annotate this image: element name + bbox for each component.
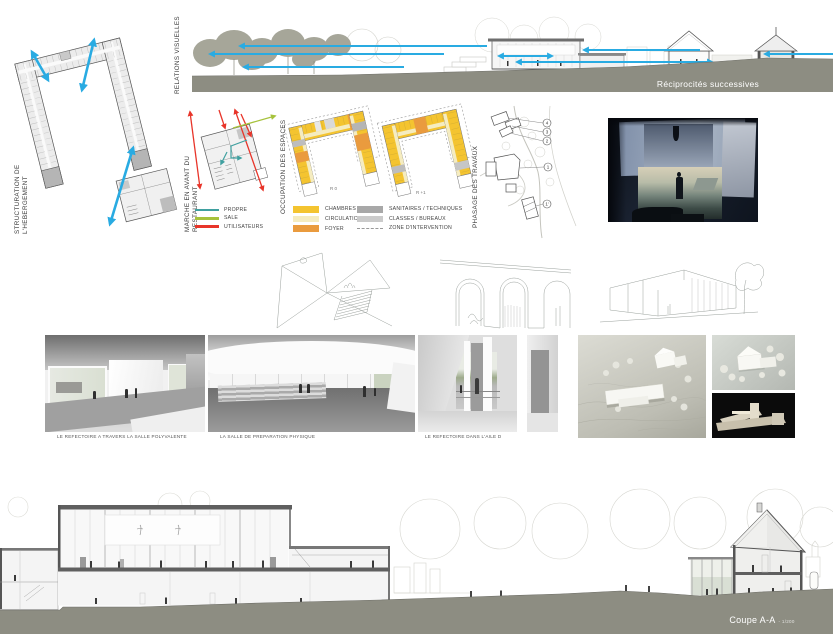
level-label-r0: R 0: [330, 186, 337, 191]
model-photo-detail-top: [712, 335, 795, 390]
photo-figure-inverted: [673, 126, 679, 141]
render3-column: [464, 341, 471, 421]
legend-label-foyer: FOYER: [325, 226, 344, 232]
section-title-relations: RELATIONS VISUELLES: [174, 14, 182, 94]
render3-railing: [456, 397, 501, 398]
coupe-main-building: [58, 505, 390, 606]
legend-row-utilisateurs: UTILISATEURS: [195, 224, 263, 230]
legend-swatch-sanitaires: [357, 206, 383, 213]
render3-floor: [418, 411, 517, 432]
mid-building-section: [488, 39, 626, 70]
legend-row-circulation: CIRCULATION: [293, 216, 362, 223]
legend-label-zone-intervention: ZONE D'INTERVENTION: [389, 225, 452, 231]
model-photo-night: [712, 393, 795, 438]
legend-swatch-sale: [195, 217, 219, 220]
render1-figure: [135, 388, 138, 398]
render-salle-preparation: [208, 335, 415, 432]
phase-markers: 4 3 2 1 1': [543, 119, 552, 208]
photo-shadow-left: [608, 118, 626, 222]
render-detail-strip: [527, 335, 558, 432]
render4-sill: [527, 413, 558, 432]
model-photo-site: [578, 335, 706, 438]
legend-label-utilisateurs: UTILISATEURS: [224, 224, 263, 230]
reference-photo: [608, 118, 758, 222]
legend-row-classes: CLASSES / BUREAUX: [357, 216, 462, 223]
legend-espaces-left: CHAMBRES CIRCULATION FOYER: [293, 206, 362, 235]
legend-swatch-classes: [357, 216, 383, 223]
render1-window-building: [56, 382, 82, 394]
photo-painting-inverted: [644, 124, 713, 168]
plan-r1: [377, 104, 479, 203]
render2-stair-white: [387, 362, 415, 412]
legend-row-chambres: CHAMBRES: [293, 206, 362, 213]
render4-panel: [531, 350, 550, 413]
render2-figure: [307, 384, 310, 393]
presentation-board: STRUCTURATION DE L'HEBERGEMENT: [0, 0, 833, 634]
coupe-scale: - 1/200: [779, 619, 795, 624]
coupe-label: Coupe A-A: [729, 615, 775, 625]
level-label-r1: R +1: [416, 190, 426, 195]
sketch-arches: [438, 248, 573, 336]
legend-swatch-chambres: [293, 206, 319, 213]
photo-shadow-top: [608, 118, 758, 126]
section-title-phasage: PHASAGE DES TRAVAUX: [472, 116, 480, 228]
render2-figure: [299, 384, 302, 393]
phase-number-1bis: 1': [545, 202, 549, 207]
coupe-aa-section: [0, 497, 833, 634]
legend-swatch-circulation: [293, 216, 319, 223]
legend-swatch-foyer: [293, 225, 319, 232]
restaurant-plan: [201, 123, 268, 191]
model-detail-drawing: [712, 335, 795, 390]
photo-wanderer-figure: [676, 177, 683, 199]
model-site-drawing: [578, 335, 706, 438]
phase-buildings: [486, 112, 538, 220]
render-refectoire-aile-d: [418, 335, 517, 432]
render1-figure: [125, 389, 128, 398]
model-night-drawing: [712, 393, 795, 438]
sketch-interior-stairs: [272, 248, 397, 333]
legend-label-sanitaires: SANITAIRES / TECHNIQUES: [389, 206, 462, 212]
sketch-exterior-building: [598, 250, 763, 335]
legend-flux: PROPRE SALE UTILISATEURS: [195, 207, 263, 232]
terrace-steps: [444, 57, 486, 72]
photo-paper-right: [721, 122, 757, 198]
restaurant-flow-plan: [183, 106, 278, 206]
render2-steps: [218, 382, 326, 401]
band-title-reciprocites: Réciprocités successives: [652, 79, 764, 89]
legend-swatch-utilisateurs: [195, 225, 219, 228]
coupe-title: Coupe A-A- 1/200: [712, 615, 812, 625]
legend-row-sanitaires: SANITAIRES / TECHNIQUES: [357, 206, 462, 213]
legend-row-zone: ZONE D'INTERVENTION: [357, 225, 462, 231]
legend-label-classes: CLASSES / BUREAUX: [389, 216, 446, 222]
render1-figure: [93, 391, 96, 399]
legend-label-propre: PROPRE: [224, 207, 247, 213]
render3-figure: [460, 385, 463, 393]
caption-render2: LA SALLE DE PREPARATION PHYSIQUE: [220, 434, 315, 439]
phasing-site-plan: 4 3 2 1 1': [480, 106, 580, 238]
render2-figure: [363, 386, 366, 397]
coupe-left-annex: [0, 548, 58, 610]
photo-rocks-2: [671, 214, 704, 222]
legend-row-sale: SALE: [195, 215, 263, 221]
hebergement-plan: [8, 18, 172, 236]
legend-label-chambres: CHAMBRES: [325, 206, 356, 212]
coupe-house: [688, 503, 818, 597]
caption-render3: LE REFECTOIRE DANS L'AILE D: [425, 434, 501, 439]
render2-figure: [374, 388, 377, 396]
legend-swatch-zone-intervention: [357, 228, 383, 229]
render-refectoire-polyvalente: [45, 335, 205, 432]
caption-render1: LE REFECTOIRE A TRAVERS LA SALLE POLYVAL…: [57, 434, 187, 439]
occupation-plans: [286, 106, 471, 211]
render3-figure: [475, 378, 479, 394]
legend-row-propre: PROPRE: [195, 207, 263, 213]
render3-column: [483, 337, 492, 422]
legend-label-sale: SALE: [224, 215, 238, 221]
legend-swatch-propre: [195, 209, 219, 212]
legend-row-foyer: FOYER: [293, 225, 362, 232]
photo-wanderer-head: [677, 172, 681, 177]
legend-espaces-right: SANITAIRES / TECHNIQUES CLASSES / BUREAU…: [357, 206, 462, 235]
